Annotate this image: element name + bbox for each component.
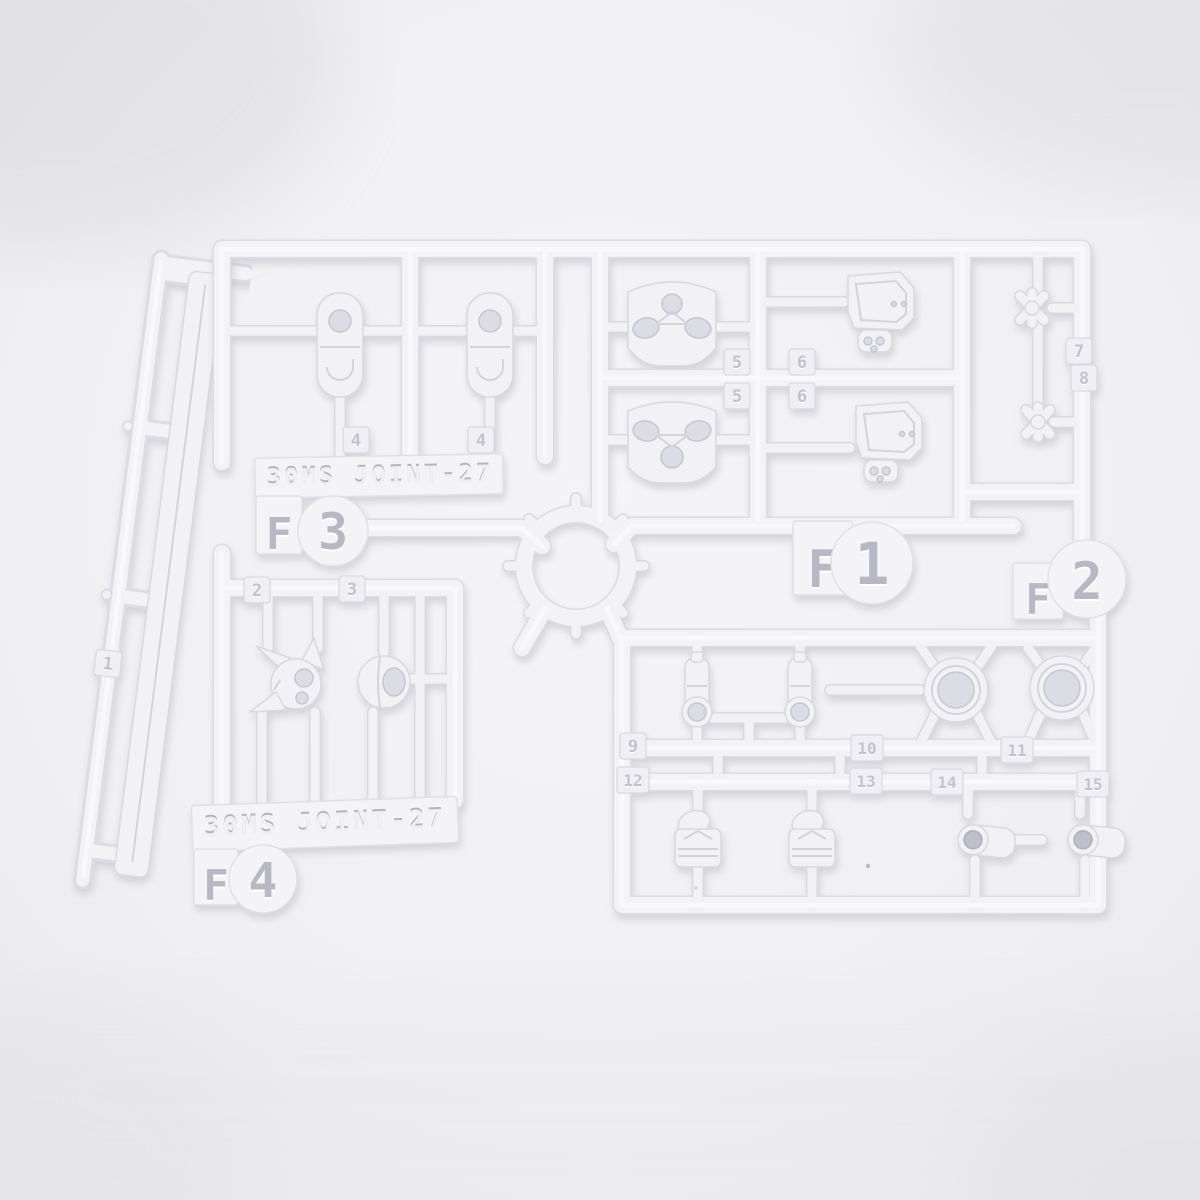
tag-15-number: 15: [1083, 775, 1102, 794]
part-tag-3: 3 3: [339, 576, 365, 602]
marker-f3: F F 3 3: [256, 496, 368, 566]
marker-f3-number: 3: [318, 503, 348, 561]
part-5-copy-a: [628, 282, 716, 366]
part-tag-4a: 4 4: [343, 427, 369, 453]
marker-f1-number: 1: [855, 530, 890, 598]
part-11-ring-copy-a: [924, 658, 988, 722]
tag-5b-number: 5: [732, 387, 742, 407]
part-4-copy-b: [467, 293, 513, 397]
part-tag-11: 11 11: [1001, 737, 1033, 763]
part-8-small-cross: [1026, 407, 1050, 437]
runner-photo-canvas: 1 1: [0, 0, 1200, 1200]
part-tag-6b: 6 6: [789, 383, 815, 409]
tag-12-number: 12: [623, 771, 642, 790]
tag-8-number: 8: [1079, 369, 1089, 389]
label-plate-top: 30MS JOINT-27 30MS JOINT-27: [255, 454, 504, 498]
tag-6a-number: 6: [797, 353, 807, 373]
tag-10-number: 10: [857, 739, 876, 758]
part-9-joint-arm: [682, 652, 712, 727]
marker-f3-letter: F: [266, 509, 293, 560]
tag-7-number: 7: [1074, 342, 1084, 362]
tag-4b-number: 4: [476, 431, 486, 451]
part-tag-8: 8 8: [1071, 365, 1097, 391]
tag-11-number: 11: [1007, 741, 1026, 760]
part-tag-9: 9 9: [620, 733, 646, 759]
marker-f4-letter: F: [203, 861, 228, 910]
part-tag-1: 1 1: [93, 649, 122, 678]
part-tag-6a: 6 6: [789, 349, 815, 375]
part-tag-15: 15 15: [1077, 771, 1109, 797]
tag-14-number: 14: [937, 773, 956, 792]
tag-13-number: 13: [856, 772, 875, 791]
label-plate-bottom: 30MS JOINT-27 30MS JOINT-27: [191, 796, 458, 851]
tag-3-number: 3: [347, 580, 357, 600]
part-5-copy-b: [628, 402, 716, 483]
photo-of-model-kit-runner: 1 1: [0, 0, 1200, 1200]
part-tag-13: 13 13: [850, 768, 882, 794]
part-3-dome: [358, 656, 410, 708]
tag-5a-number: 5: [732, 353, 742, 373]
part-7-small-cross: [1020, 293, 1044, 323]
part-tag-7: 7 7: [1066, 338, 1092, 364]
marker-f4: F F 4 4: [194, 845, 297, 913]
part-tag-5a: 5 5: [724, 349, 750, 375]
marker-f2-number: 2: [1071, 552, 1102, 612]
part-4-copy-a: [317, 293, 363, 397]
tag-2-number: 2: [252, 581, 262, 601]
part-tag-10: 10 10: [851, 735, 883, 761]
part-tag-12: 12 12: [617, 767, 649, 793]
part-tag-5b: 5 5: [724, 383, 750, 409]
part-tag-14: 14 14: [931, 769, 963, 795]
part-tag-2: 2 2: [244, 577, 270, 603]
tag-9-number: 9: [628, 737, 638, 757]
part-10-joint-arm: [785, 652, 815, 727]
part-tag-4b: 4 4: [468, 427, 494, 453]
plate-top-text: 30MS JOINT-27: [266, 460, 493, 492]
marker-f4-number: 4: [249, 853, 278, 909]
tag-6b-number: 6: [797, 387, 807, 407]
tag-4a-number: 4: [351, 431, 361, 451]
part-11-ring-copy-b: [1030, 656, 1094, 720]
marker-f2-letter: F: [1025, 575, 1050, 624]
marker-f1: F F 1 1: [793, 521, 913, 604]
